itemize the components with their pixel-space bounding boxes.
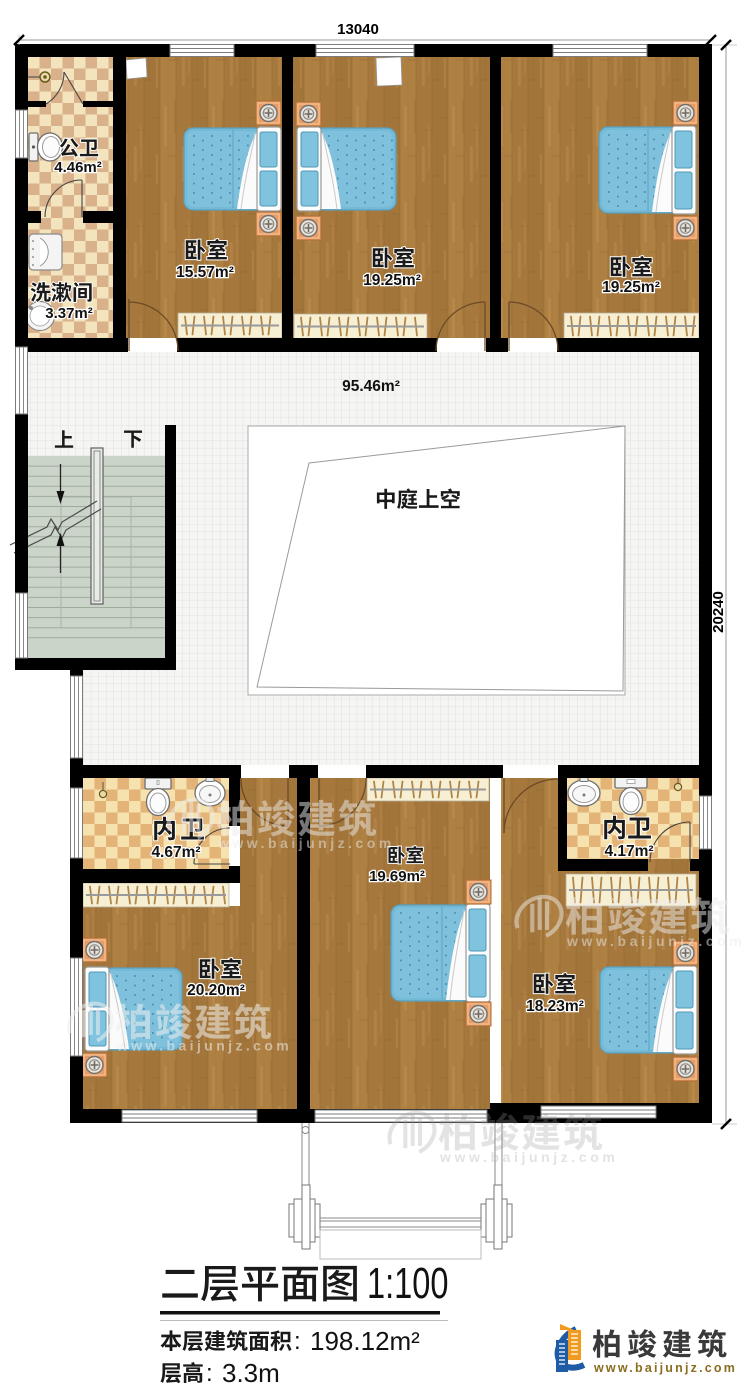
svg-text:19.25m²: 19.25m²: [363, 272, 421, 289]
svg-text:3.3m: 3.3m: [222, 1358, 280, 1388]
svg-text:20240: 20240: [710, 591, 727, 633]
svg-text::: :: [206, 1360, 213, 1387]
svg-text:www.baijunjz.com: www.baijunjz.com: [217, 835, 395, 851]
svg-text:198.12m²: 198.12m²: [310, 1326, 420, 1356]
svg-text:18.23m²: 18.23m²: [526, 998, 584, 1015]
svg-text:15.57m²: 15.57m²: [176, 264, 234, 281]
svg-text:19.25m²: 19.25m²: [602, 279, 660, 296]
svg-text:3.37m²: 3.37m²: [45, 305, 93, 322]
svg-text:20.20m²: 20.20m²: [187, 982, 245, 999]
svg-text:95.46m²: 95.46m²: [342, 378, 400, 395]
svg-text:www.baijunjz.com: www.baijunjz.com: [116, 1037, 292, 1053]
svg-text:4.46m²: 4.46m²: [54, 159, 102, 176]
svg-text:www.baijunjz.com: www.baijunjz.com: [566, 933, 745, 949]
svg-text:13040: 13040: [337, 21, 379, 38]
svg-text:19.69m²: 19.69m²: [369, 868, 425, 885]
svg-text:4.67m²: 4.67m²: [151, 844, 200, 861]
svg-text:www.baijunjz.com: www.baijunjz.com: [593, 1361, 737, 1375]
svg-text:www.baijunjz.com: www.baijunjz.com: [439, 1149, 618, 1165]
svg-text:4.17m²: 4.17m²: [604, 843, 653, 860]
svg-text::: :: [294, 1328, 301, 1355]
svg-text:1:100: 1:100: [367, 1259, 448, 1308]
